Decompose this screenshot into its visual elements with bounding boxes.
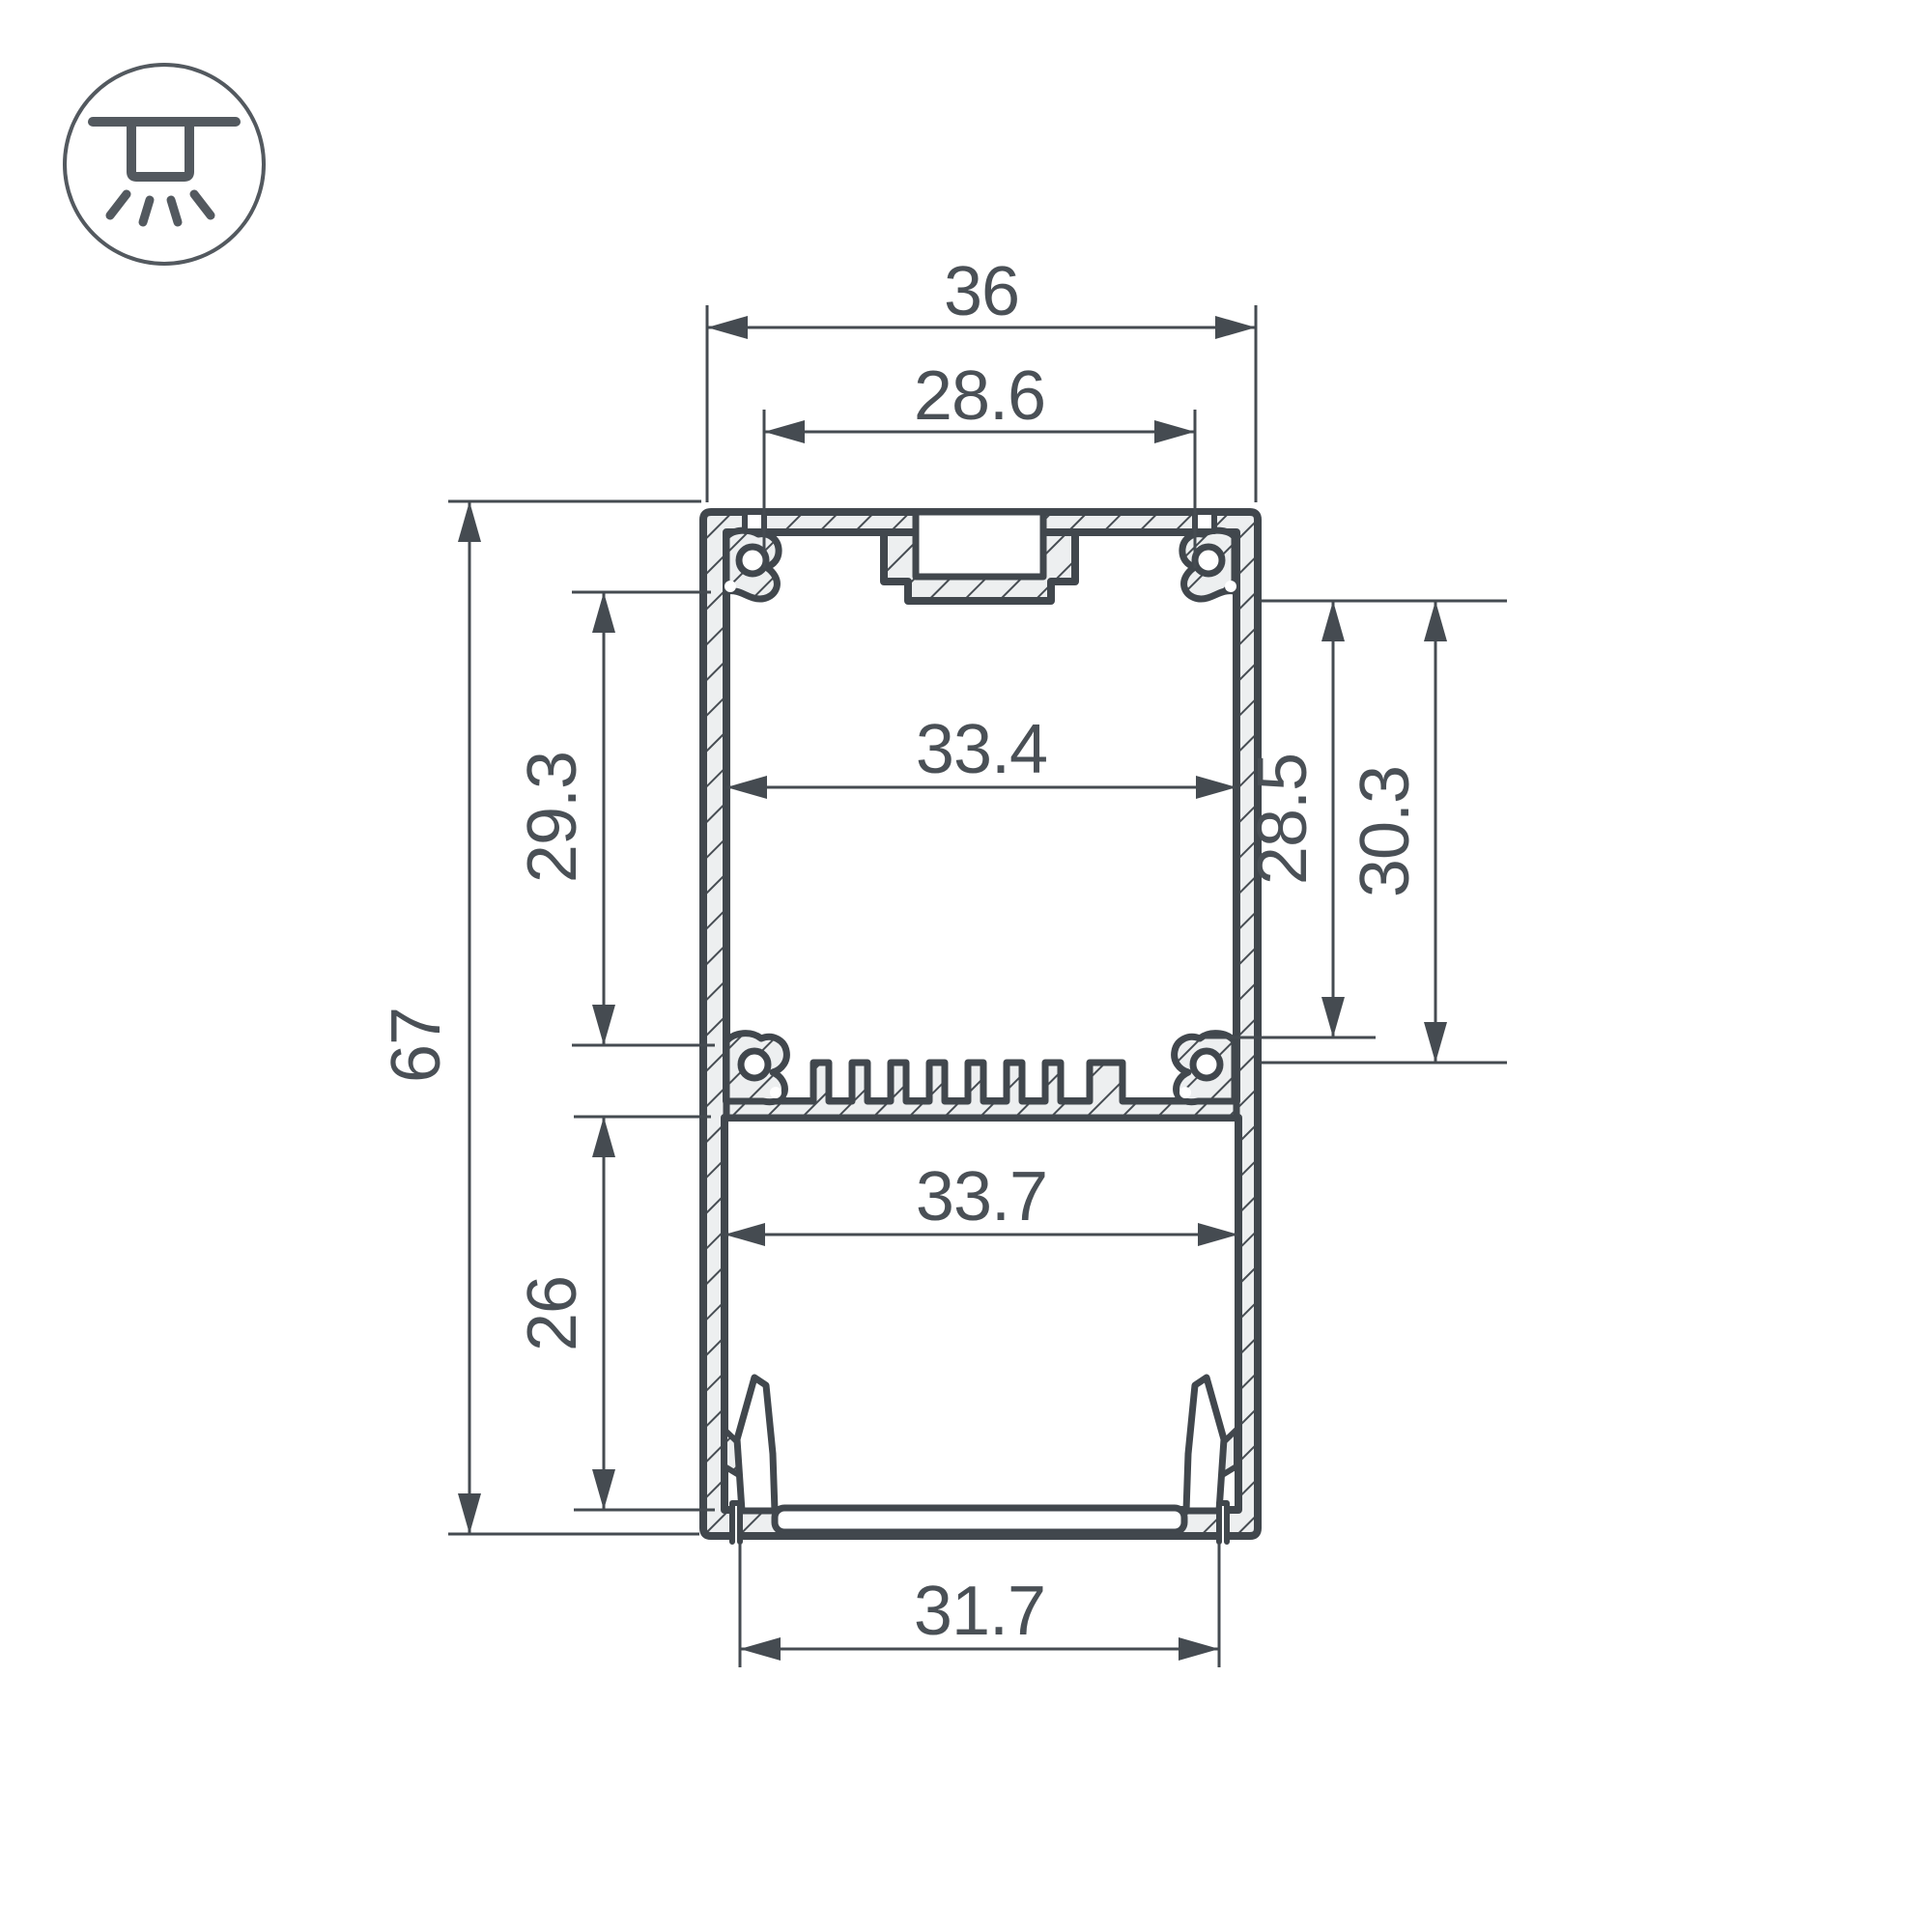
dim-label-top-slot-width: 28.6 <box>914 357 1045 435</box>
top-groove-right <box>1195 512 1214 531</box>
dim-inner-width-upper: 33.4 <box>726 711 1236 788</box>
screw-boss-middle-left <box>726 1034 786 1102</box>
technical-drawing: 36 28.6 33.4 29.3 67 26 <box>0 0 1932 1932</box>
dim-label-right-inner-height-to-fins: 30.3 <box>1347 766 1424 897</box>
dim-label-bottom-opening-width: 31.7 <box>914 1573 1045 1650</box>
dim-label-right-inner-height-to-boss: 28.5 <box>1244 753 1321 885</box>
spring-clip-left <box>737 1378 775 1511</box>
dim-bottom-opening-width: 31.7 <box>740 1544 1219 1667</box>
top-channel-hollow <box>916 512 1043 577</box>
bottom-slit-right <box>1219 1503 1227 1542</box>
screw-boss-top-left <box>724 530 779 599</box>
profile-frame <box>703 512 1258 1536</box>
ceiling-surface-mount-light-icon <box>65 65 264 264</box>
dim-label-upper-inner-height-left: 29.3 <box>514 752 591 883</box>
dim-lower-inner-height-left: 26 <box>514 1117 715 1510</box>
dim-label-inner-width-lower: 33.7 <box>916 1158 1047 1236</box>
profile-cross-section <box>703 512 1258 1542</box>
top-groove-left <box>745 512 764 531</box>
drawing-page: 36 28.6 33.4 29.3 67 26 <box>0 0 1932 1932</box>
floor-plate <box>775 1508 1184 1532</box>
dim-label-overall-width: 36 <box>944 253 1019 330</box>
screw-boss-middle-right <box>1175 1034 1235 1102</box>
dim-inner-width-lower: 33.7 <box>724 1158 1238 1236</box>
bottom-slit-left <box>732 1503 740 1542</box>
icon-circle <box>65 65 264 264</box>
dim-label-inner-width-upper: 33.4 <box>916 711 1047 788</box>
heatsink-shelf <box>726 1063 1236 1118</box>
spring-clip-right <box>1186 1378 1224 1511</box>
screw-boss-top-right <box>1182 530 1236 599</box>
dim-upper-inner-height-left: 29.3 <box>514 592 715 1045</box>
dim-label-overall-height: 67 <box>378 1008 455 1083</box>
dim-label-lower-inner-height-left: 26 <box>514 1276 591 1351</box>
dim-overall-height: 67 <box>378 501 701 1534</box>
icon-light-rays <box>110 194 211 222</box>
dimension-annotations: 36 28.6 33.4 29.3 67 26 <box>378 253 1507 1667</box>
icon-fixture-body <box>131 122 189 177</box>
